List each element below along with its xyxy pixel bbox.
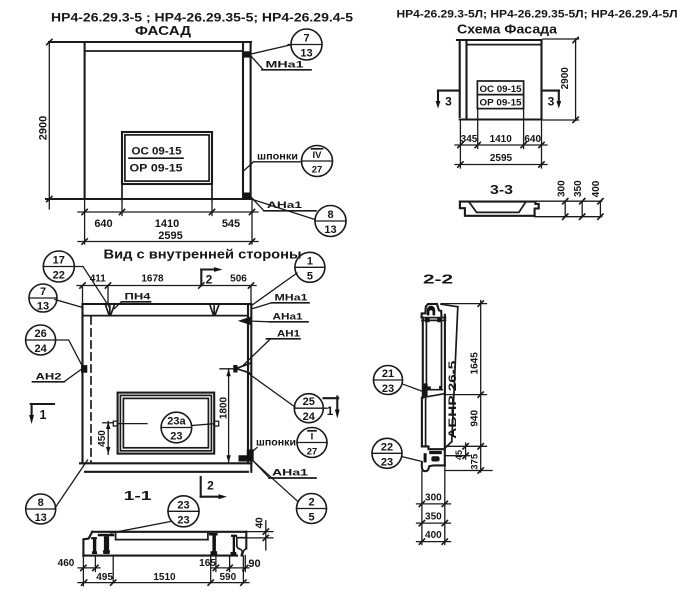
- svg-text:НР4-26.29.3-5 ; НР4-26.29.35-5: НР4-26.29.3-5 ; НР4-26.29.35-5; НР4-26.2…: [51, 11, 353, 25]
- svg-text:13: 13: [37, 301, 49, 313]
- svg-text:350: 350: [425, 512, 442, 523]
- svg-text:7: 7: [40, 286, 46, 298]
- svg-text:350: 350: [573, 180, 584, 197]
- svg-text:1678: 1678: [141, 274, 164, 285]
- svg-text:450: 450: [97, 430, 108, 447]
- svg-text:27: 27: [307, 447, 318, 458]
- svg-text:2: 2: [206, 273, 213, 287]
- svg-text:1410: 1410: [490, 134, 513, 145]
- svg-text:24: 24: [34, 343, 47, 355]
- svg-text:26: 26: [34, 328, 46, 340]
- svg-text:ОР 09-15: ОР 09-15: [130, 163, 183, 175]
- svg-text:460: 460: [58, 558, 75, 569]
- svg-text:22: 22: [53, 270, 65, 282]
- svg-text:шпонки: шпонки: [256, 438, 296, 449]
- svg-text:8: 8: [327, 209, 333, 221]
- svg-text:1510: 1510: [153, 572, 176, 583]
- svg-text:27: 27: [312, 165, 323, 176]
- svg-text:17: 17: [53, 255, 65, 267]
- svg-text:7: 7: [303, 33, 309, 45]
- svg-text:Схема Фасада: Схема Фасада: [457, 23, 558, 37]
- svg-text:2595: 2595: [490, 153, 513, 164]
- svg-text:23а: 23а: [167, 416, 186, 428]
- svg-text:3: 3: [548, 95, 555, 109]
- svg-text:ОР 09-15: ОР 09-15: [480, 97, 522, 107]
- svg-text:1: 1: [327, 404, 334, 418]
- svg-text:2900: 2900: [560, 67, 571, 90]
- svg-text:АНа1: АНа1: [272, 468, 309, 479]
- svg-text:Вид с внутренней стороны: Вид с внутренней стороны: [104, 247, 302, 262]
- svg-text:13: 13: [35, 512, 47, 524]
- svg-text:АН1: АН1: [277, 329, 301, 340]
- svg-text:545: 545: [222, 218, 240, 230]
- svg-text:ОС 09-15: ОС 09-15: [132, 146, 182, 158]
- svg-text:1410: 1410: [155, 218, 179, 230]
- svg-text:1-1: 1-1: [124, 488, 152, 503]
- svg-text:3: 3: [445, 95, 452, 109]
- svg-text:300: 300: [556, 180, 567, 197]
- svg-text:495: 495: [96, 572, 113, 583]
- svg-text:400: 400: [425, 530, 442, 541]
- svg-text:13: 13: [324, 224, 336, 236]
- svg-text:2595: 2595: [158, 230, 182, 242]
- svg-text:165: 165: [199, 558, 216, 569]
- svg-text:I: I: [311, 432, 314, 443]
- svg-text:МНа1: МНа1: [275, 293, 309, 304]
- svg-text:21: 21: [382, 368, 394, 380]
- svg-text:23: 23: [382, 383, 394, 395]
- svg-text:ФАСАД: ФАСАД: [135, 24, 191, 38]
- svg-text:40: 40: [255, 517, 266, 529]
- svg-text:23: 23: [177, 499, 189, 511]
- svg-text:300: 300: [425, 492, 442, 503]
- svg-text:МНа1: МНа1: [266, 60, 305, 71]
- svg-text:411: 411: [90, 274, 107, 285]
- svg-text:2: 2: [207, 479, 214, 493]
- svg-text:2900: 2900: [38, 116, 50, 140]
- svg-text:5: 5: [308, 512, 314, 524]
- svg-text:АН2: АН2: [36, 372, 62, 383]
- svg-text:23: 23: [381, 456, 393, 468]
- svg-text:23: 23: [170, 431, 182, 443]
- svg-text:22: 22: [381, 441, 393, 453]
- svg-text:90: 90: [248, 558, 260, 570]
- svg-text:1645: 1645: [470, 352, 481, 375]
- svg-text:шпонки: шпонки: [257, 152, 298, 163]
- svg-text:АБНР 26-5: АБНР 26-5: [447, 361, 459, 439]
- svg-text:2-2: 2-2: [423, 272, 453, 287]
- svg-text:345: 345: [461, 134, 478, 145]
- svg-text:8: 8: [38, 497, 44, 509]
- svg-text:940: 940: [470, 410, 481, 427]
- svg-text:45: 45: [454, 450, 464, 460]
- svg-text:2: 2: [308, 497, 314, 509]
- svg-text:24: 24: [303, 411, 316, 423]
- svg-text:5: 5: [307, 270, 313, 282]
- svg-text:НР4-26.29.3-5Л; НР4-26.29.35-5: НР4-26.29.3-5Л; НР4-26.29.35-5Л; НР4-26.…: [397, 9, 678, 21]
- svg-text:ПН4: ПН4: [125, 292, 152, 303]
- svg-text:23: 23: [177, 514, 189, 526]
- svg-text:АНа1: АНа1: [273, 312, 304, 323]
- svg-text:25: 25: [303, 396, 315, 408]
- svg-text:506: 506: [230, 274, 247, 285]
- svg-text:375: 375: [470, 453, 481, 470]
- svg-text:ОС 09-15: ОС 09-15: [480, 84, 522, 94]
- svg-text:590: 590: [219, 572, 236, 583]
- svg-text:640: 640: [94, 218, 112, 230]
- svg-text:13: 13: [300, 48, 312, 60]
- svg-text:640: 640: [524, 134, 541, 145]
- svg-text:1800: 1800: [218, 396, 229, 419]
- svg-text:IV: IV: [313, 150, 323, 161]
- svg-text:3-3: 3-3: [490, 182, 513, 197]
- svg-text:1: 1: [40, 408, 47, 422]
- svg-text:400: 400: [591, 180, 602, 197]
- svg-text:1: 1: [307, 255, 313, 267]
